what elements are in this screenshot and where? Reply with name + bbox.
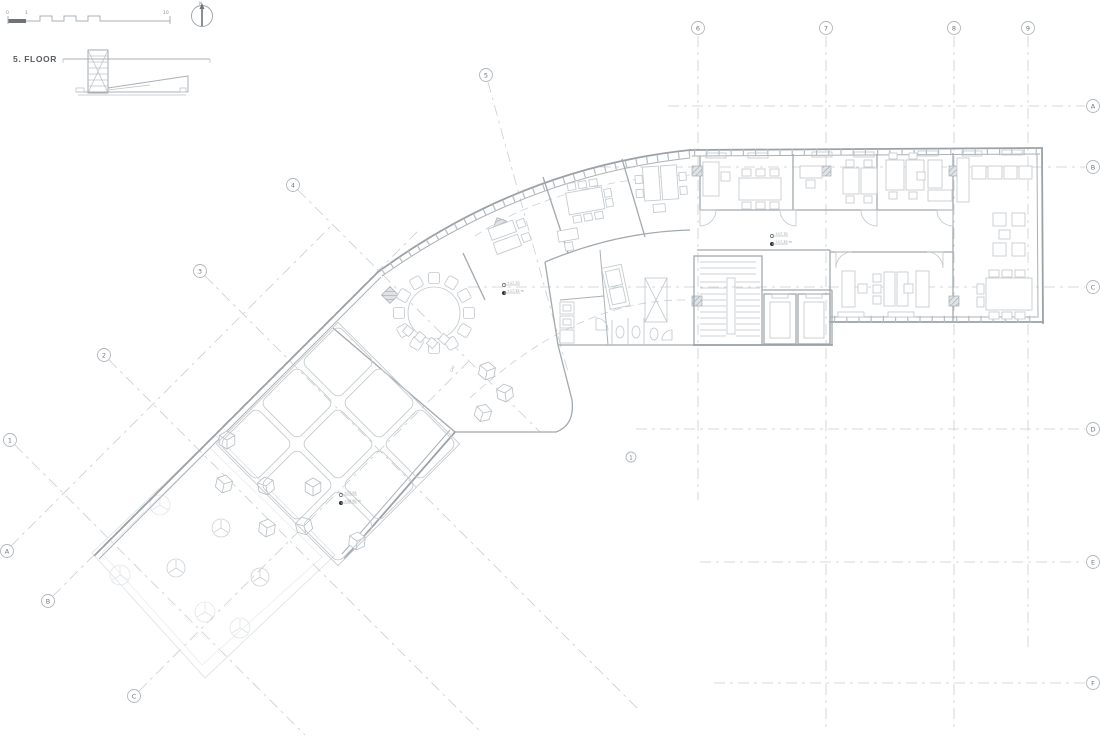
grid-bubble-C-left: C bbox=[128, 690, 141, 703]
scale-zero: 0 bbox=[6, 10, 9, 16]
structural-grid bbox=[11, 36, 1085, 735]
grid-bubble-9: 9 bbox=[1022, 22, 1035, 35]
meeting-room-furniture bbox=[838, 271, 929, 317]
stair-treads bbox=[700, 262, 760, 336]
svg-text:7: 7 bbox=[824, 25, 828, 33]
svg-text:+17.70: +17.70 bbox=[775, 232, 788, 236]
svg-text:1: 1 bbox=[8, 437, 12, 445]
grid-bubble-3: 3 bbox=[194, 265, 207, 278]
svg-text:+17.70: +17.70 bbox=[507, 281, 520, 285]
floor-label: 5. FLOOR bbox=[13, 54, 57, 64]
svg-text:C: C bbox=[1091, 284, 1096, 292]
grid-bubble-E-right: E bbox=[1087, 556, 1100, 569]
curved-office-a bbox=[488, 216, 532, 254]
svg-text:A: A bbox=[5, 548, 10, 556]
svg-text:B: B bbox=[46, 598, 50, 606]
grid-bubble-D-right: D bbox=[1087, 423, 1100, 436]
grid-bubble-B-right: B bbox=[1087, 161, 1100, 174]
svg-text:5: 5 bbox=[484, 72, 488, 80]
floor-plan-svg: 6 7 8 9 A B C D bbox=[0, 0, 1100, 740]
grid-bubble-2: 2 bbox=[98, 349, 111, 362]
grid-bubble-7: 7 bbox=[820, 22, 833, 35]
grid-bubble-1: 1 bbox=[4, 434, 17, 447]
skylight-terrace bbox=[216, 322, 459, 565]
svg-text:+16.90 m: +16.90 m bbox=[344, 499, 362, 503]
north-label: N bbox=[199, 1, 202, 7]
svg-text:+17.35 m: +17.35 m bbox=[775, 240, 793, 244]
grid-bubble-C-right: C bbox=[1087, 281, 1100, 294]
svg-text:A: A bbox=[1091, 103, 1096, 111]
tea-area-label: Çay bbox=[449, 365, 455, 372]
svg-text:B: B bbox=[1091, 164, 1095, 172]
grid-bubble-5: 5 bbox=[480, 69, 493, 82]
svg-text:E: E bbox=[1091, 559, 1095, 567]
grid-bubble-4: 4 bbox=[287, 179, 300, 192]
svg-text:+17.35 m: +17.35 m bbox=[507, 289, 525, 293]
level-annotations: +17.70 +17.35 m +17.70 +17.35 m +17.05 +… bbox=[339, 232, 793, 505]
cube-stools bbox=[214, 325, 513, 550]
service-block bbox=[560, 250, 672, 345]
svg-text:3: 3 bbox=[198, 268, 202, 276]
key-section-drawing bbox=[63, 50, 210, 95]
lower-terrace-faint bbox=[92, 435, 335, 678]
title-block: 0 1 10 N 5. FLOOR bbox=[6, 1, 213, 95]
scale-one: 1 bbox=[25, 10, 28, 16]
north-arrow-icon: N bbox=[192, 1, 213, 27]
office-room-2-furniture bbox=[800, 160, 877, 203]
lounge-room-furniture bbox=[957, 158, 1032, 319]
curved-office-c bbox=[634, 164, 688, 213]
grid-bubble-A-left: A bbox=[1, 545, 14, 558]
scale-bar: 0 1 10 bbox=[6, 10, 170, 24]
svg-text:6: 6 bbox=[696, 25, 700, 33]
grid-bubble-B-left: B bbox=[42, 595, 55, 608]
floor-plan-canvas: 6 7 8 9 A B C D bbox=[0, 0, 1100, 740]
svg-text:4: 4 bbox=[291, 182, 295, 190]
office-room-1-furniture bbox=[703, 162, 781, 209]
svg-text:D: D bbox=[1090, 426, 1095, 434]
corridor-level-marker: +17.70 +17.35 m bbox=[770, 232, 793, 246]
grid-bubble-F-right: F bbox=[1087, 677, 1100, 690]
atrium-level-marker: +17.70 +17.35 m bbox=[502, 281, 525, 295]
grid-bubble-8: 8 bbox=[948, 22, 961, 35]
stair-elevator-core bbox=[694, 256, 832, 345]
svg-text:2: 2 bbox=[102, 352, 106, 360]
grid-bubble-6: 6 bbox=[692, 22, 705, 35]
svg-text:+17.05: +17.05 bbox=[344, 491, 357, 495]
svg-text:F: F bbox=[1091, 680, 1095, 688]
grid-bubble-A-right: A bbox=[1087, 100, 1100, 113]
scale-ten: 10 bbox=[163, 10, 169, 16]
office-room-3-furniture bbox=[886, 153, 952, 201]
svg-text:8: 8 bbox=[952, 25, 956, 33]
grid-bubbles: 6 7 8 9 A B C D bbox=[1, 22, 1100, 703]
svg-text:9: 9 bbox=[1026, 25, 1030, 33]
terrace-level-marker: +17.05 +16.90 m bbox=[339, 491, 362, 505]
svg-text:C: C bbox=[132, 693, 137, 701]
grid-bubble-inner-1: 1 bbox=[626, 452, 636, 462]
svg-text:1: 1 bbox=[629, 456, 633, 462]
